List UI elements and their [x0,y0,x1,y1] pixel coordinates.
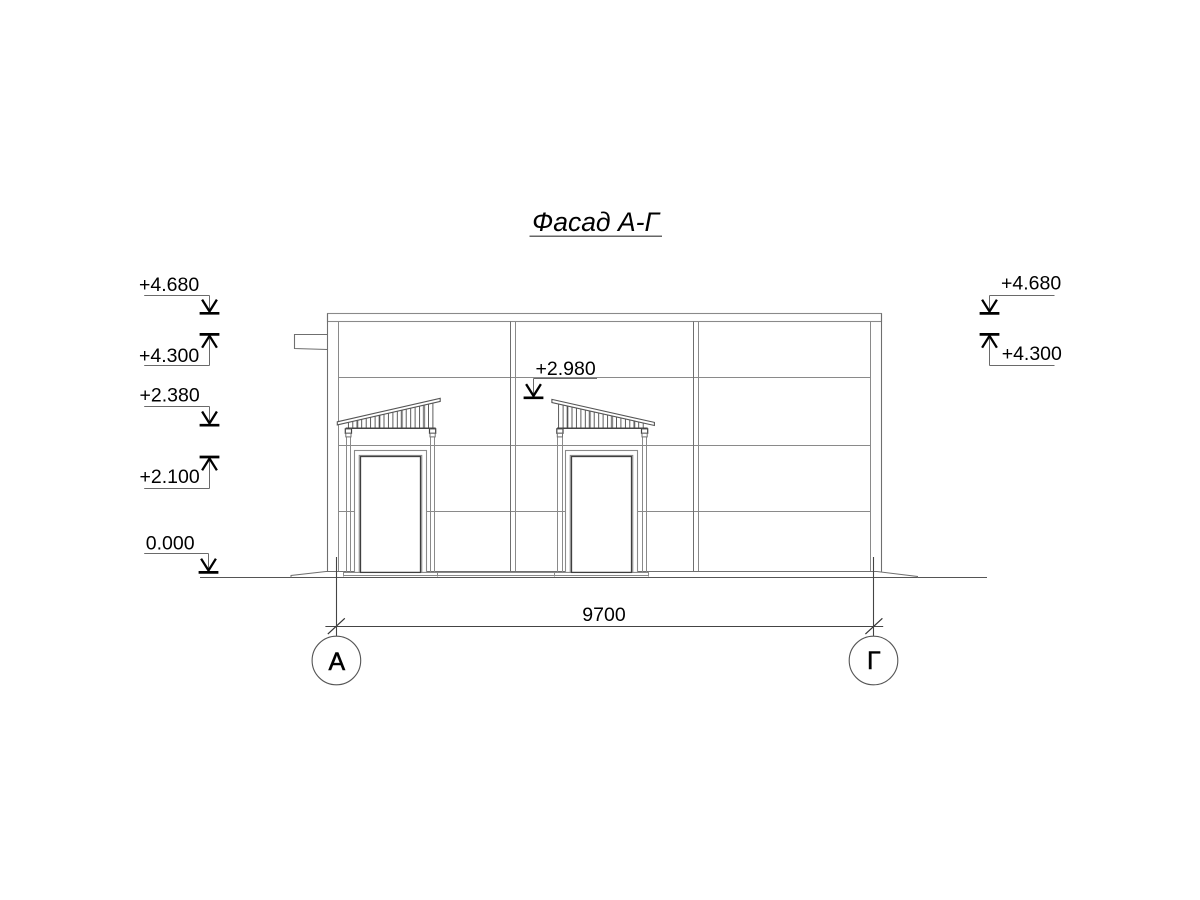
svg-text:+2.100: +2.100 [140,466,200,488]
svg-text:Г: Г [867,647,881,675]
svg-text:+4.680: +4.680 [139,274,199,296]
svg-text:Фасад А-Г: Фасад А-Г [532,207,661,237]
svg-text:+4.300: +4.300 [139,345,199,367]
svg-text:0.000: 0.000 [146,532,195,554]
svg-text:+2.980: +2.980 [536,358,596,380]
svg-text:+2.380: +2.380 [140,384,200,406]
svg-text:+4.300: +4.300 [1002,343,1062,365]
svg-text:9700: 9700 [582,604,626,626]
svg-text:+4.680: +4.680 [1001,273,1061,295]
svg-text:А: А [329,648,346,676]
